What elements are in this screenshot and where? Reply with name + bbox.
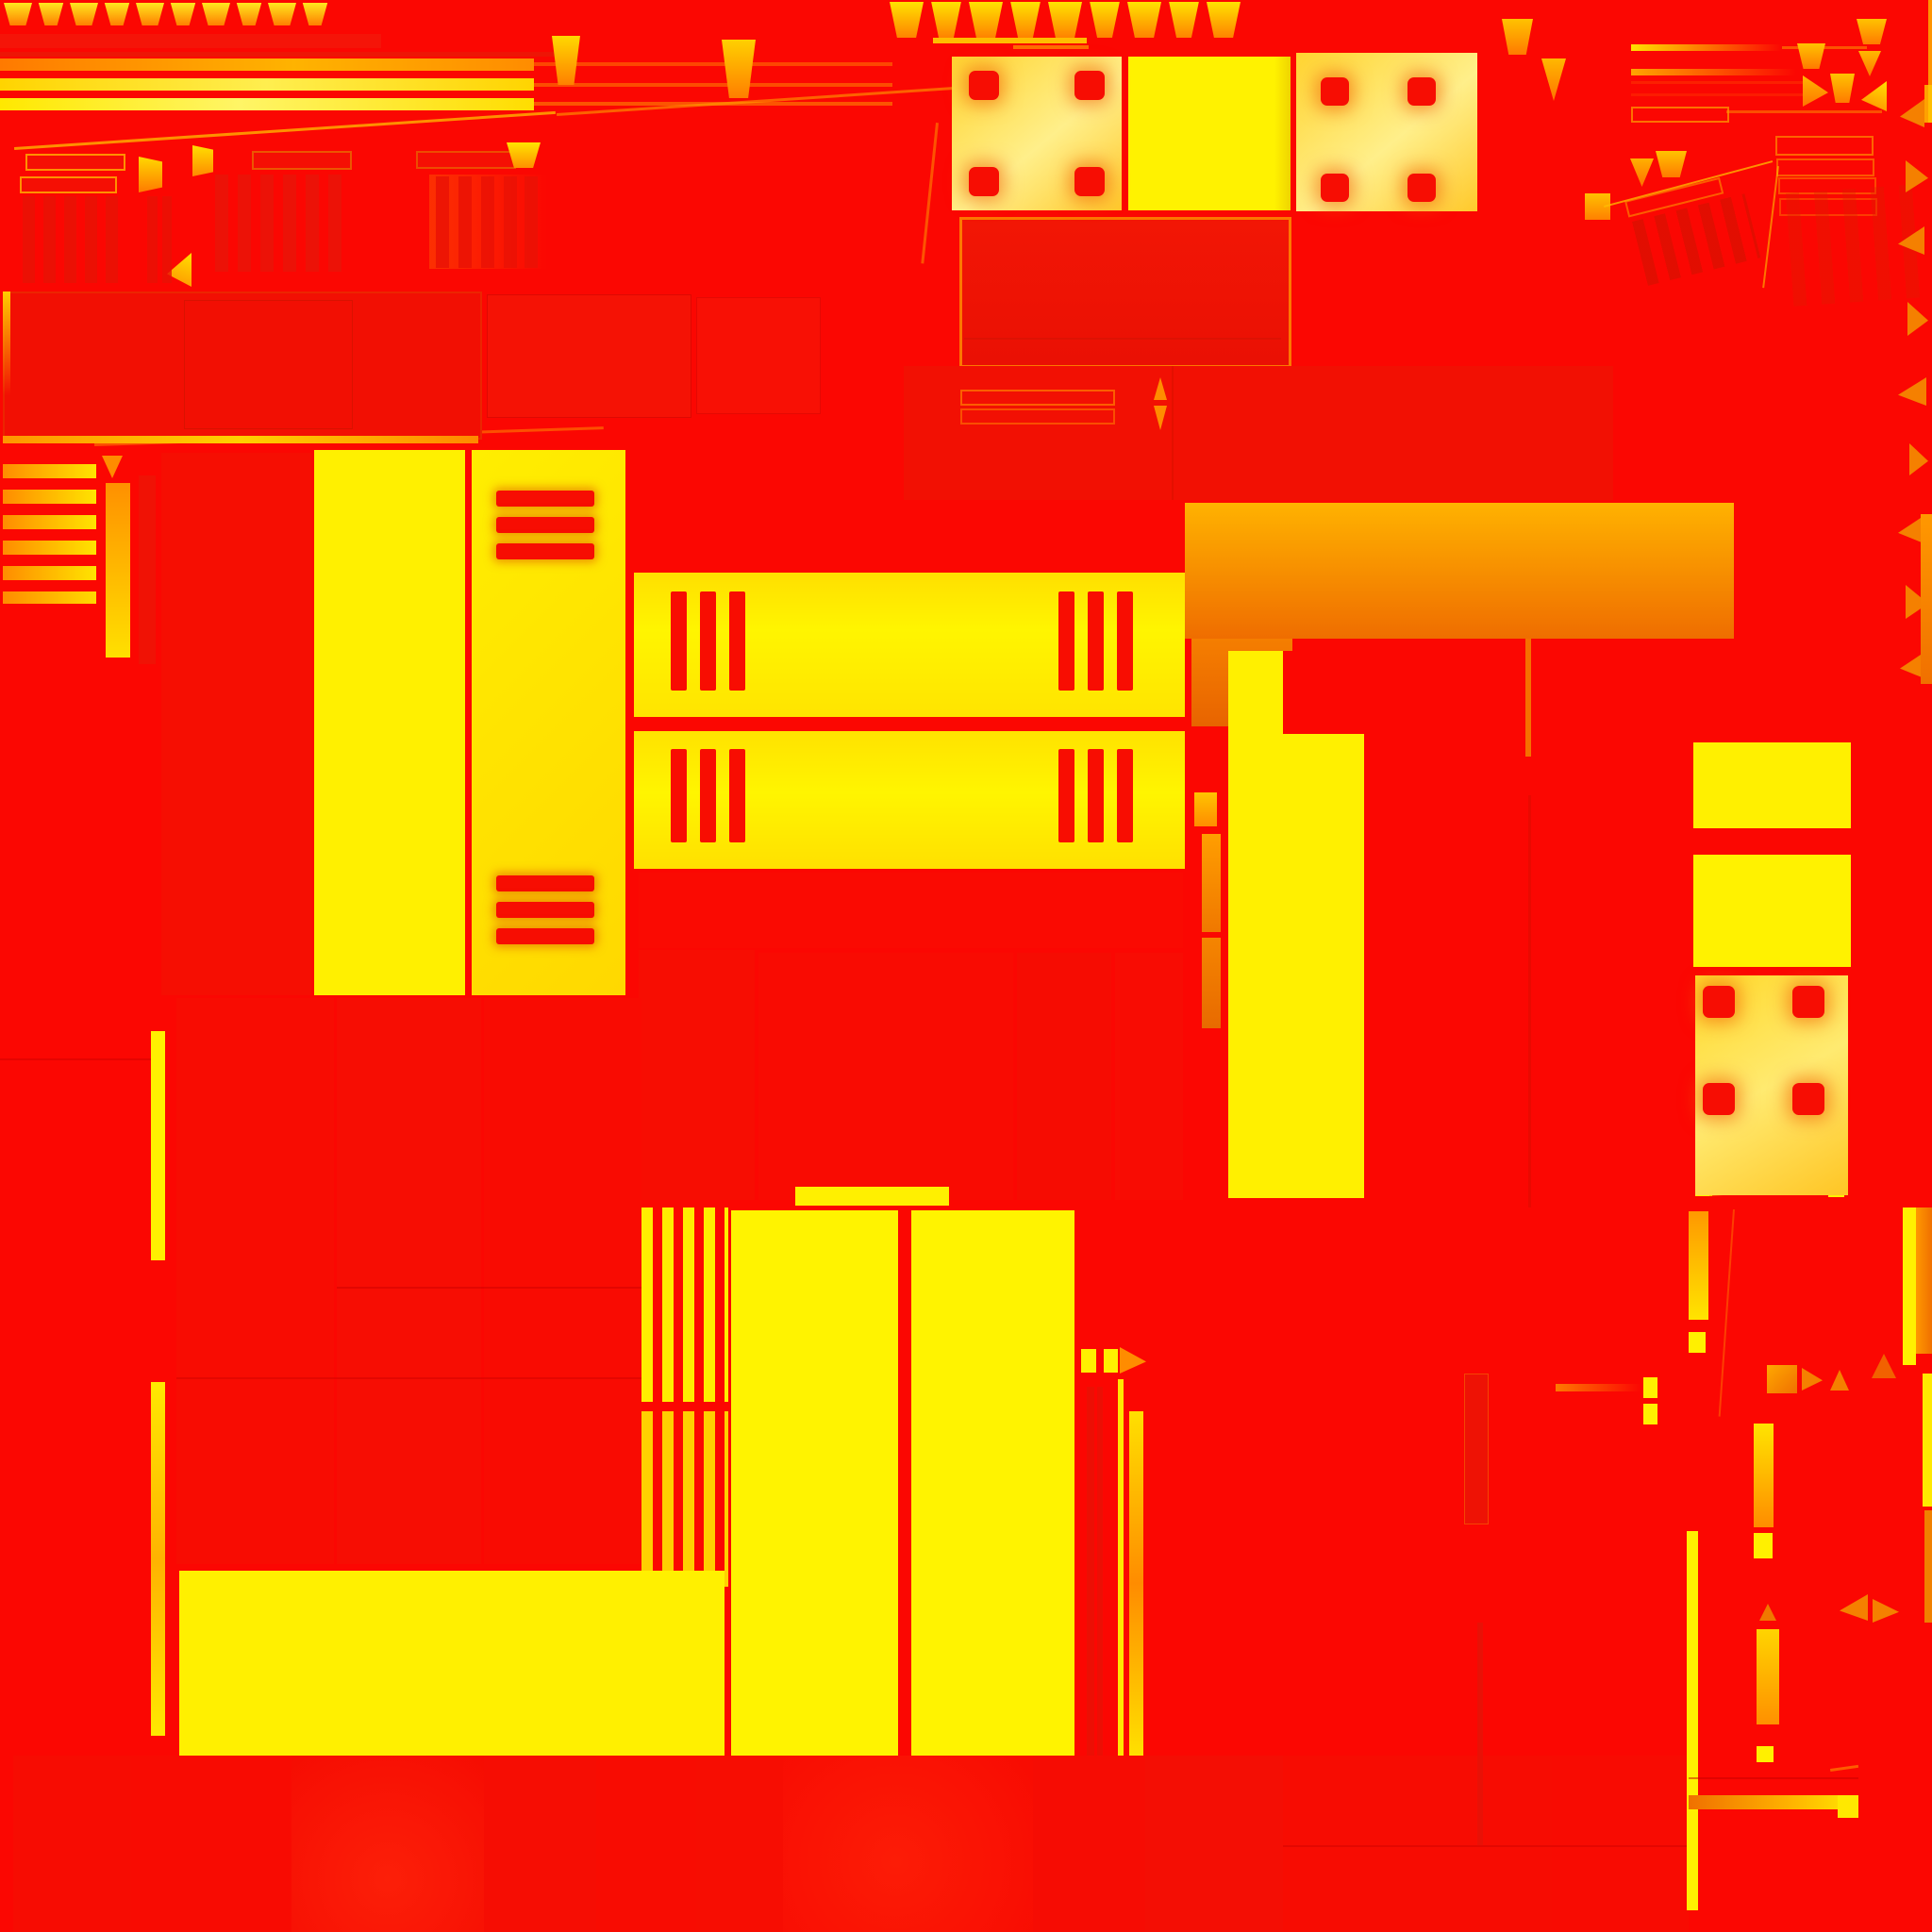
orange-band: [1185, 503, 1734, 639]
dotted-panel-3-dot-3: [1792, 1083, 1824, 1115]
obox-tr-2: [1775, 136, 1874, 156]
ob-sq-2: [1754, 1533, 1773, 1558]
trap-tr-2: [1797, 43, 1825, 69]
strip-red-line: [0, 52, 566, 57]
tri-orange-mid: [1120, 1347, 1146, 1374]
bars-stack-bl-4: [3, 541, 96, 555]
stripe-yellow-1: [0, 78, 534, 91]
bar-grp-a-2: [43, 196, 56, 283]
teeth-row-top-left-tooth-2: [70, 3, 98, 25]
big-panel-inner: [184, 300, 353, 429]
bar-grp-c-5: [525, 176, 538, 268]
hamburger-top-1: [496, 491, 594, 507]
band1-bar-r1: [1058, 591, 1074, 691]
bar-grp-b-6: [328, 175, 341, 272]
br-panel-9: [1145, 1756, 1283, 1932]
lb-panel-3: [484, 998, 641, 1564]
bars-stack-bl-1: [3, 464, 96, 478]
dark-zone-divider: [1172, 366, 1174, 500]
bar-grp-a2-1: [147, 196, 158, 283]
wide-yellow-col-2: [911, 1210, 1074, 1756]
sq-yellow-2: [1104, 1349, 1118, 1373]
outlined-box-1: [25, 154, 125, 171]
trap-tr-3: [1858, 51, 1881, 76]
band2-bar-r3: [1117, 749, 1133, 842]
dotted-panel-2-dot-0: [1321, 77, 1349, 106]
side-panel-2: [696, 297, 821, 414]
mid-panel-1: [639, 950, 755, 1200]
teeth-row-top-mid-tooth-6: [1127, 2, 1161, 38]
band2-bar-r1: [1058, 749, 1074, 842]
obox-tr-1: [1631, 107, 1729, 123]
orange-tri-col: [102, 456, 123, 478]
wide-yellow-col-1: [731, 1210, 898, 1756]
outlined-box-3: [252, 151, 352, 170]
big-panel-left-glow: [3, 291, 10, 395]
pennant-2: [192, 145, 213, 176]
br-panel-6: [696, 1756, 783, 1932]
mid-red-band: [639, 873, 1183, 948]
edge-tri-1: [1900, 99, 1924, 127]
band2-bar-r2: [1088, 749, 1104, 842]
br-panel-2: [131, 1756, 291, 1932]
hamburger-top-2: [496, 517, 594, 533]
corner-tri-3: [1759, 1604, 1776, 1621]
orange-thin-vline: [1525, 639, 1531, 757]
teeth-glow-line: [933, 38, 1087, 43]
dotted-panel-3-dot-1: [1792, 986, 1824, 1018]
dotted-panel-1-dot-1: [1074, 71, 1105, 100]
line-tr-3: [1726, 110, 1882, 113]
left-col-line: [0, 1058, 158, 1060]
bars-stack-bl-2: [3, 490, 96, 504]
trap-tr-8: [1630, 158, 1654, 187]
teeth-row-top-mid-tooth-5: [1088, 2, 1122, 38]
trap-tr-6: [1861, 81, 1887, 111]
bar-grp-a2-2: [162, 196, 172, 283]
bar-grp-a-1: [23, 196, 35, 283]
bar-grp-c-4: [504, 176, 517, 268]
slot-outline-2: [960, 408, 1115, 425]
teeth-row-top-mid-tooth-0: [890, 2, 924, 38]
grad-strip-v: [106, 483, 130, 658]
plain-yellow-panel: [1128, 57, 1291, 210]
col-right-notch: [1283, 651, 1368, 734]
glow-line-tr-1: [1631, 44, 1782, 51]
outlined-vbar: [1464, 1374, 1489, 1524]
barcode-upper: [641, 1207, 728, 1402]
glow-hline-mid: [1556, 1384, 1641, 1391]
corner-tri-1: [1840, 1594, 1868, 1621]
tri-sm-3: [1872, 1354, 1896, 1378]
band1-bar-l3: [729, 591, 745, 691]
band2-bar-l2: [700, 749, 716, 842]
lb-panel-1: [176, 998, 334, 1564]
stripe-orange: [0, 58, 534, 71]
yellow-vstrip-1: [151, 1031, 165, 1260]
sq-pair-2: [1643, 1404, 1657, 1424]
teeth-row-top-mid-tooth-4: [1048, 2, 1082, 38]
edge-tri-6: [1909, 443, 1928, 475]
faint-line-tr-2: [1631, 93, 1806, 96]
bar-grp-b-1: [215, 175, 228, 272]
faint-hline-br: [1689, 1777, 1858, 1779]
diag-line-3: [921, 123, 939, 263]
col-left-strip-3: [1202, 938, 1221, 1028]
sq-pair-1: [1643, 1377, 1657, 1398]
band2-bar-l1: [671, 749, 687, 842]
band1-bar-l1: [671, 591, 687, 691]
mid-panel-3: [1017, 953, 1111, 1200]
re-bar-3: [1923, 1374, 1932, 1507]
stripe-yellow-2: [0, 98, 534, 110]
trap-tr-4: [1803, 75, 1828, 107]
outlined-box-2: [20, 176, 117, 193]
corner-tri-2: [1873, 1599, 1899, 1623]
mid-panel-4: [1115, 953, 1183, 1200]
dotted-panel-3-dot-2: [1703, 1083, 1735, 1115]
thin-yellow-vline: [1118, 1379, 1124, 1756]
br-hline: [1283, 1845, 1689, 1847]
slot-outline-1: [960, 390, 1115, 406]
trap-tr-5: [1830, 74, 1855, 103]
orange-block-sm: [1767, 1365, 1797, 1393]
teeth-row-top-mid-tooth-8: [1207, 2, 1241, 38]
teeth-row-top-mid-tooth-1: [929, 2, 963, 38]
diag-br-1: [1719, 1209, 1735, 1417]
col-left-strip-1: [1194, 792, 1217, 826]
red-block-mid: [161, 453, 311, 995]
teeth-row-top-left-tooth-8: [268, 3, 296, 25]
bar-grp-b-3: [260, 175, 274, 272]
br-panel-7: [783, 1756, 1033, 1932]
dotted-panel-3-dot-0: [1703, 986, 1735, 1018]
bar-grp-c-3: [481, 176, 494, 268]
mid-divider-vline: [1528, 795, 1531, 1207]
strip-red-bar-1: [0, 34, 381, 48]
bar-grp-a-5: [106, 196, 118, 283]
trap-tr-1: [1857, 19, 1887, 44]
dark-red-zone: [904, 366, 1613, 500]
big-panel-bottom-glow: [3, 436, 478, 443]
dotted-panel-1-dot-0: [969, 71, 999, 100]
br-panel-11: [1552, 1756, 1689, 1932]
sq-yellow-1: [1081, 1349, 1096, 1373]
trap-tr-10: [1502, 19, 1533, 55]
lb-line-1: [337, 1287, 641, 1289]
br-panel-8: [1033, 1756, 1145, 1932]
mid-yellow-bar: [795, 1187, 949, 1206]
hamburger-bot-1: [496, 875, 594, 891]
bar-grp-b-2: [238, 175, 251, 272]
ry-block-1: [1693, 742, 1851, 828]
stripe-ext-1: [534, 62, 892, 66]
yellow-vstrip-2: [151, 1382, 165, 1736]
lb-panel-2: [337, 998, 481, 1564]
bar-grp-c-1: [436, 176, 449, 268]
teeth-row-top-left-tooth-5: [169, 3, 197, 25]
glow-line-tr-2: [1631, 69, 1796, 75]
bars-stack-bl-6: [3, 591, 96, 604]
teeth-row-top-left-tooth-9: [301, 3, 329, 25]
hamburger-bot-2: [496, 902, 594, 918]
diag-line-1: [14, 111, 556, 150]
br-panel-1: [13, 1756, 131, 1932]
thin-vline-2: [1477, 1623, 1483, 1845]
side-panel-1: [487, 294, 691, 418]
teeth-row-top-left-tooth-7: [235, 3, 263, 25]
dotted-panel-2-dot-1: [1407, 77, 1436, 106]
edge-obar-1: [1921, 514, 1932, 684]
ob-sq-1: [1689, 1332, 1706, 1353]
trap-tr-11: [1541, 58, 1566, 101]
teeth-row-top-left-tooth-1: [37, 3, 65, 25]
long-yellow-vline: [1687, 1531, 1698, 1910]
outlined-red-inner-line: [964, 338, 1281, 340]
tri-sm-2: [1830, 1370, 1849, 1391]
br-panel-3: [291, 1756, 484, 1932]
obox-tr-3: [1776, 158, 1874, 176]
red-vbar-1: [139, 475, 156, 664]
bars-stack-bl-5: [3, 566, 96, 580]
bar-grp-c-2: [458, 176, 472, 268]
br-panel-10: [1283, 1756, 1552, 1932]
outlined-red-panel: [959, 217, 1291, 368]
tooth-single-b: [722, 40, 756, 98]
edge-tri-4: [1907, 302, 1928, 336]
bar-grp-a-3: [64, 196, 76, 283]
pennant-1: [139, 157, 162, 192]
teeth-row-top-left-tooth-6: [202, 3, 230, 25]
band1-bar-r3: [1117, 591, 1133, 691]
edge-tri-5: [1898, 377, 1926, 406]
tooth-single-a: [552, 36, 580, 85]
grad-hbar-end: [1838, 1795, 1858, 1818]
orange-tick: [1830, 1765, 1858, 1772]
teeth-row-top-mid-tooth-2: [969, 2, 1003, 38]
barcode-lower: [641, 1411, 728, 1587]
teeth-row-top-left-tooth-3: [103, 3, 131, 25]
teeth-row-top-left-tooth-0: [4, 3, 32, 25]
ob-vbar-3: [1757, 1629, 1779, 1724]
re-bar-1: [1903, 1207, 1916, 1365]
teeth-row-top-left-tooth-4: [136, 3, 164, 25]
col-left-strip-2: [1202, 834, 1221, 932]
dark-vbar-1: [1087, 1387, 1094, 1756]
ob-vbar-1: [1689, 1211, 1708, 1320]
hamburger-top-3: [496, 543, 594, 559]
br-panel-5: [596, 1756, 696, 1932]
re-bar-2: [1916, 1207, 1932, 1354]
lb-line-2: [176, 1377, 641, 1379]
grad-vbar-mid: [1129, 1411, 1143, 1756]
dotted-panel-2-dot-2: [1321, 174, 1349, 202]
bar-grp-a-4: [85, 196, 97, 283]
band1-bar-r2: [1088, 591, 1104, 691]
dotted-panel-1-dot-3: [1074, 167, 1105, 196]
dotted-panel-2-dot-3: [1407, 174, 1436, 202]
re-bar-4: [1924, 1510, 1932, 1623]
bar-grp-b-5: [306, 175, 319, 272]
band2-bar-l3: [729, 749, 745, 842]
faint-line-tr-1: [1631, 81, 1806, 84]
teeth-row-top-mid-tooth-7: [1167, 2, 1201, 38]
teeth-glow-line-2: [1013, 45, 1089, 49]
dotted-panel-1-dot-2: [969, 167, 999, 196]
bottom-yellow-block: [179, 1571, 724, 1756]
ry-block-2: [1693, 855, 1851, 967]
edge-yline-2: [1924, 85, 1932, 123]
hamburger-bot-3: [496, 928, 594, 944]
bars-stack-bl-3: [3, 515, 96, 529]
stripe-ext-2: [534, 83, 892, 87]
texture-atlas-canvas: [0, 0, 1932, 1932]
outlined-box-4: [416, 151, 516, 169]
dark-vbar-2: [1097, 1387, 1103, 1756]
yellow-col-a: [314, 450, 465, 995]
band1-bar-l2: [700, 591, 716, 691]
trap-tr-7: [1656, 151, 1687, 177]
quad-line-tr-b: [1762, 166, 1779, 288]
bar-grp-b-4: [283, 175, 296, 272]
ob-sq-3: [1757, 1746, 1774, 1762]
br-panel-4: [484, 1756, 596, 1932]
teeth-row-top-mid-tooth-3: [1008, 2, 1042, 38]
mid-panel-2: [758, 953, 1013, 1200]
tri-sm-1: [1802, 1368, 1823, 1391]
ob-vbar-2: [1754, 1424, 1774, 1527]
grad-hbar-br: [1689, 1795, 1858, 1809]
